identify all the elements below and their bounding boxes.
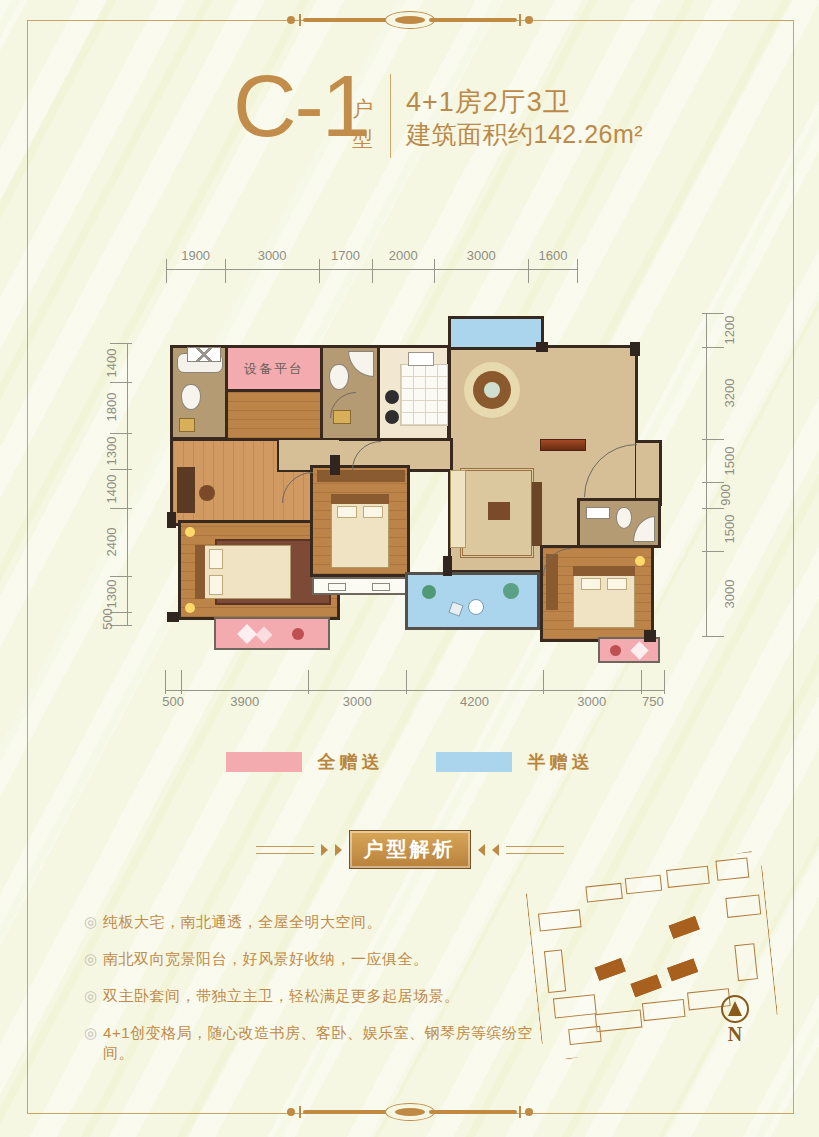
dimension-value: 1200 — [722, 316, 737, 345]
chevron-right-icon — [335, 844, 342, 856]
feature-bullet: ◎双主卧套间，带独立主卫，轻松满足更多起居场景。 — [84, 986, 554, 1006]
patio-chair — [448, 601, 463, 616]
dimension-value: 1300 — [104, 579, 119, 608]
dimension-segment: 3900 — [181, 678, 308, 714]
dimension-value: 1700 — [331, 248, 360, 263]
dimension-segment: 2400 — [94, 508, 134, 575]
kitchen-sink — [408, 352, 434, 366]
plant — [422, 585, 436, 599]
dimension-segment: 4200 — [406, 678, 543, 714]
site-map-building — [725, 894, 761, 917]
feature-bullet-text: 纯板大宅，南北通透，全屋全明大空间。 — [103, 912, 382, 932]
bottom-divider-ornament-icon — [275, 1101, 545, 1123]
kitchen-floor-tiles — [400, 364, 448, 426]
chevron-right-icon — [321, 844, 328, 856]
plant — [503, 583, 519, 599]
dimension-segment: 1400 — [94, 469, 134, 508]
top-divider-ornament-icon — [275, 9, 545, 31]
south-balcony-half-gift — [405, 572, 540, 630]
full-gift-label: 全赠送 — [318, 750, 384, 774]
dimension-segment: 2000 — [372, 248, 434, 284]
dimension-segment: 500 — [94, 612, 134, 626]
lamp — [185, 527, 195, 537]
dimension-value: 3200 — [722, 379, 737, 408]
dimension-value: 500 — [100, 608, 115, 630]
dimension-segment: 1200 — [700, 313, 740, 347]
dimension-segment: 1700 — [319, 248, 372, 284]
ring-bullet-icon: ◎ — [84, 1023, 97, 1043]
dimension-value: 4200 — [460, 694, 489, 709]
north-compass: N — [715, 995, 755, 1045]
headboard — [573, 566, 635, 576]
headboard — [195, 545, 205, 599]
dimension-segment: 3000 — [308, 678, 406, 714]
dimension-ruler-right: 12003200150090015003000 — [700, 313, 740, 637]
dining-centerpiece — [484, 382, 500, 398]
dimension-value: 1800 — [104, 393, 119, 422]
floorplan-poster: C-1 户型 4+1房2厅3卫 建筑面积约142.26m² 1900300017… — [0, 0, 819, 1137]
flower-decor — [292, 628, 304, 640]
equipment-platform: 设备平台 — [225, 345, 323, 392]
chevron-left-icon — [478, 844, 485, 856]
dimension-value: 1400 — [104, 474, 119, 503]
dimension-value: 1900 — [181, 248, 210, 263]
dimension-segment: 1600 — [528, 248, 578, 284]
legend: 全赠送 半赠送 — [0, 750, 819, 774]
dimension-value: 1500 — [722, 446, 737, 475]
feature-bullet: ◎4+1创变格局，随心改造书房、客卧、娱乐室、钢琴房等缤纷空间。 — [84, 1023, 554, 1063]
dimension-segment: 1500 — [700, 508, 740, 551]
balcony-decor — [630, 641, 648, 659]
dimension-segment: 1300 — [94, 576, 134, 612]
feature-bullet: ◎南北双向宽景阳台，好风景好收纳，一应俱全。 — [84, 949, 554, 969]
toilet — [329, 364, 349, 390]
toilet — [616, 507, 632, 529]
south-balcony-full-gift-left — [214, 617, 330, 650]
dimension-value: 3000 — [577, 694, 606, 709]
banner-title: 户型解析 — [349, 830, 471, 869]
desk — [177, 467, 195, 513]
dimension-value: 3000 — [722, 580, 737, 609]
dimension-segment: 500 — [165, 678, 181, 714]
dimension-segment: 1400 — [94, 343, 134, 382]
dimension-segment: 1500 — [700, 439, 740, 482]
bathroom-3 — [577, 498, 661, 548]
banner-line-right — [506, 846, 564, 854]
kitchen — [377, 345, 450, 441]
storage-room — [225, 389, 323, 441]
dimension-value: 2000 — [389, 248, 418, 263]
header-divider — [390, 74, 391, 158]
toilet — [181, 384, 201, 410]
flower-decor — [610, 645, 621, 656]
legend-item-half-gift: 半赠送 — [436, 750, 594, 774]
dimension-value: 1500 — [722, 515, 737, 544]
unit-area-spec: 建筑面积约142.26m² — [406, 118, 643, 151]
stove-burner — [385, 410, 399, 424]
bay-window — [312, 577, 408, 595]
pillow — [607, 578, 627, 590]
compass-icon — [721, 995, 749, 1023]
ac-platform — [187, 347, 221, 362]
dimension-segment: 750 — [641, 678, 665, 714]
dimension-value: 1300 — [104, 436, 119, 465]
feature-bullet-text: 双主卧套间，带独立主卫，轻松满足更多起居场景。 — [103, 986, 460, 1006]
dimension-segment: 3000 — [543, 678, 641, 714]
balcony-decor — [256, 627, 273, 644]
north-label: N — [715, 1023, 755, 1045]
full-gift-swatch — [226, 752, 302, 772]
dimension-value: 900 — [718, 484, 733, 506]
shower — [633, 516, 655, 542]
banner-line-left — [256, 846, 314, 854]
desk-chair — [199, 485, 215, 501]
dimension-segment: 900 — [700, 482, 740, 508]
entry-nook — [636, 440, 662, 506]
dimension-value: 1400 — [104, 348, 119, 377]
coffee-table — [488, 502, 510, 520]
sink — [179, 418, 195, 432]
feature-bullet-text: 南北双向宽景阳台，好风景好收纳，一应俱全。 — [103, 949, 429, 969]
ring-bullet-icon: ◎ — [84, 986, 97, 1006]
feature-bullet-text: 4+1创变格局，随心改造书房、客卧、娱乐室、钢琴房等缤纷空间。 — [103, 1023, 554, 1063]
lamp — [635, 556, 645, 566]
pillow — [581, 578, 601, 590]
balcony-decor — [237, 624, 257, 644]
sofa — [450, 470, 466, 548]
patio-table — [468, 599, 484, 615]
shower — [348, 351, 374, 377]
north-balcony-half-gift — [448, 316, 544, 350]
dimension-segment: 1300 — [94, 433, 134, 469]
dimension-ruler-left: 140018001300140024001300500 — [94, 343, 134, 626]
unit-code: C-1 — [233, 62, 369, 150]
pillow — [337, 506, 357, 518]
dimension-segment: 3000 — [225, 248, 319, 284]
pillow — [209, 575, 223, 595]
dimension-value: 1600 — [539, 248, 568, 263]
dimension-value: 3000 — [467, 248, 496, 263]
dimension-value: 3000 — [343, 694, 372, 709]
tv-stand — [532, 482, 542, 546]
dimension-segment: 3000 — [434, 248, 528, 284]
half-gift-label: 半赠送 — [528, 750, 594, 774]
legend-item-full-gift: 全赠送 — [226, 750, 384, 774]
dimension-value: 3900 — [230, 694, 259, 709]
unit-code-suffix: 户型 — [352, 94, 374, 155]
stove-burner — [385, 390, 399, 404]
dimension-value: 2400 — [104, 527, 119, 556]
dimension-ruler-top: 190030001700200030001600 — [166, 248, 578, 284]
ring-bullet-icon: ◎ — [84, 912, 97, 932]
dimension-ruler-bottom: 5003900300042003000750 — [165, 678, 665, 714]
window-glyph — [372, 583, 390, 591]
site-map-building — [734, 943, 758, 981]
dimension-segment: 1800 — [94, 382, 134, 432]
lamp — [185, 603, 195, 613]
half-gift-swatch — [436, 752, 512, 772]
entry-console — [540, 439, 586, 451]
feature-bullet: ◎纯板大宅，南北通透，全屋全明大空间。 — [84, 912, 554, 932]
dimension-segment: 1900 — [166, 248, 225, 284]
pillow — [209, 549, 223, 569]
headboard — [331, 494, 389, 504]
chevron-left-icon — [492, 844, 499, 856]
ring-bullet-icon: ◎ — [84, 949, 97, 969]
bedroom-2 — [310, 465, 410, 577]
dimension-segment: 3200 — [700, 347, 740, 439]
dimension-value: 750 — [642, 694, 664, 709]
dimension-value: 3000 — [258, 248, 287, 263]
equipment-platform-label: 设备平台 — [228, 360, 320, 378]
unit-rooms-spec: 4+1房2厅3卫 — [406, 84, 571, 120]
sink — [586, 507, 610, 519]
site-map-building — [715, 858, 749, 881]
feature-bullet-list: ◎纯板大宅，南北通透，全屋全明大空间。◎南北双向宽景阳台，好风景好收纳，一应俱全… — [84, 912, 554, 1080]
site-map-building — [568, 1026, 601, 1045]
window-glyph — [328, 583, 346, 591]
dimension-segment: 3000 — [700, 551, 740, 637]
pillow — [363, 506, 383, 518]
